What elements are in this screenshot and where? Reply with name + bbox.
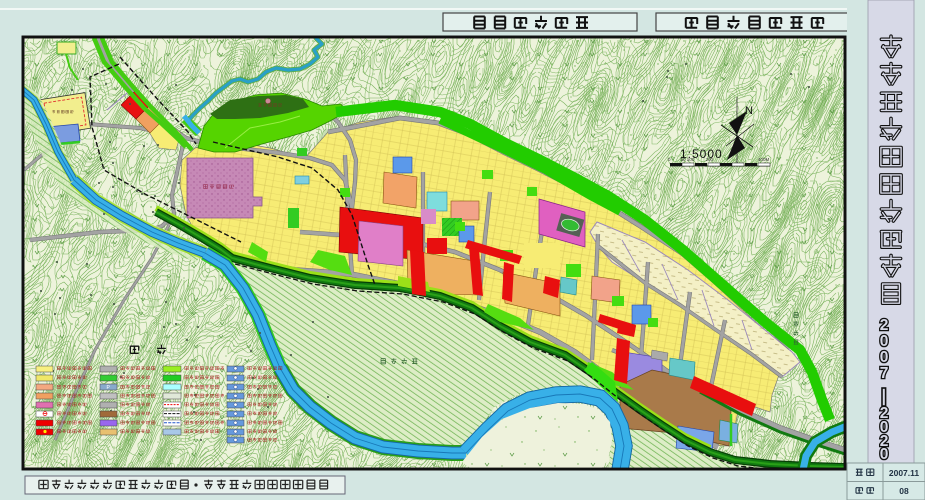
- svg-text:N: N: [745, 105, 753, 117]
- svg-text:400M: 400M: [758, 157, 770, 162]
- svg-text:0: 0: [880, 349, 889, 366]
- svg-text:2007.11: 2007.11: [889, 468, 920, 478]
- svg-text:7: 7: [880, 365, 889, 382]
- svg-text:2: 2: [880, 317, 889, 334]
- svg-text:0: 0: [880, 333, 889, 350]
- svg-text:50 100: 50 100: [681, 157, 695, 162]
- svg-text:200: 200: [706, 157, 714, 162]
- svg-text:0: 0: [880, 446, 889, 463]
- svg-text:08: 08: [899, 486, 909, 496]
